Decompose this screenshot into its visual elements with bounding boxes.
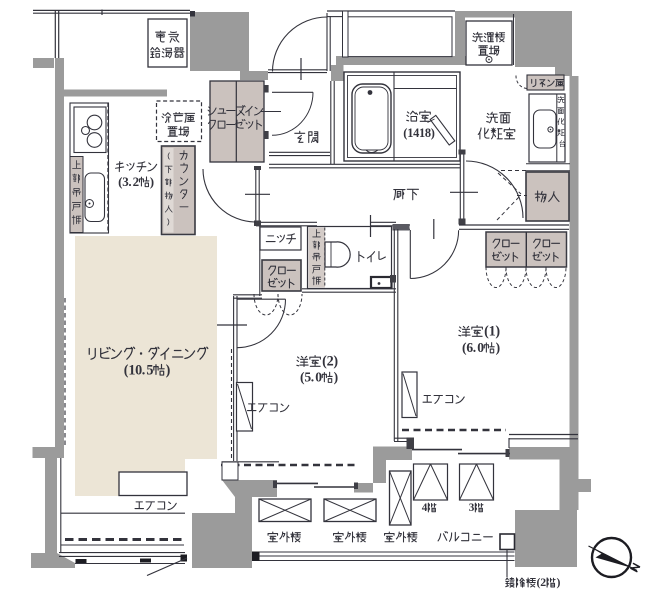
svg-text:4: 4 bbox=[422, 502, 428, 514]
svg-text:): ) bbox=[166, 362, 171, 378]
svg-text:0: 0 bbox=[477, 340, 484, 355]
svg-text:): ) bbox=[496, 340, 501, 356]
svg-text:.: . bbox=[311, 370, 314, 385]
svg-text:0: 0 bbox=[315, 370, 322, 385]
svg-text:): ) bbox=[495, 323, 500, 339]
svg-text:): ) bbox=[333, 353, 338, 369]
svg-text:2: 2 bbox=[540, 575, 546, 589]
svg-text:): ) bbox=[150, 174, 154, 189]
svg-text:5: 5 bbox=[146, 362, 153, 378]
svg-text:台: 台 bbox=[559, 139, 566, 148]
svg-text:.: . bbox=[473, 340, 476, 355]
svg-text:): ) bbox=[334, 370, 339, 386]
svg-text:.: . bbox=[128, 174, 131, 189]
svg-text:3: 3 bbox=[469, 502, 475, 514]
svg-text:): ) bbox=[431, 126, 435, 140]
svg-text:.: . bbox=[142, 362, 146, 378]
svg-text:): ) bbox=[557, 575, 561, 589]
svg-text:2: 2 bbox=[133, 174, 140, 189]
